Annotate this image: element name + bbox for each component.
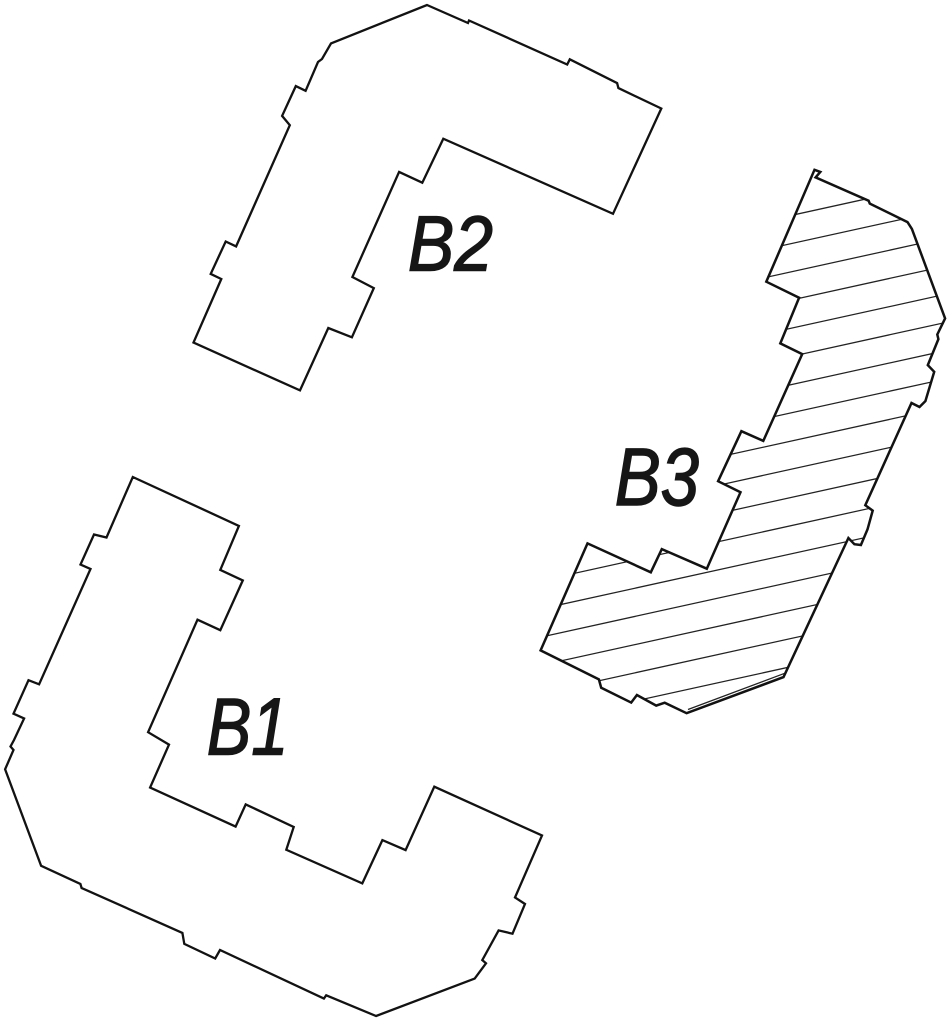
svg-text:B2: B2 (408, 202, 493, 288)
svg-text:B1: B1 (207, 683, 289, 773)
svg-text:B3: B3 (615, 432, 699, 523)
